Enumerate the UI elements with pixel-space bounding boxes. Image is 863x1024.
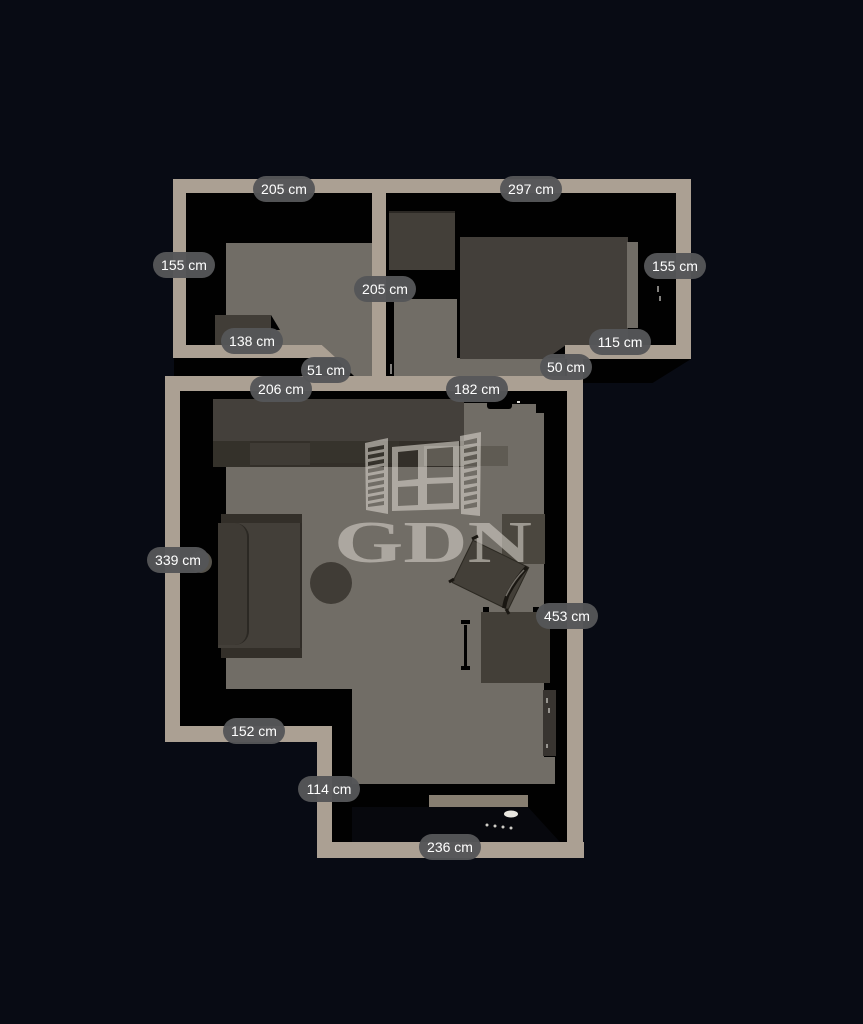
svg-text:GDN: GDN bbox=[334, 509, 532, 575]
